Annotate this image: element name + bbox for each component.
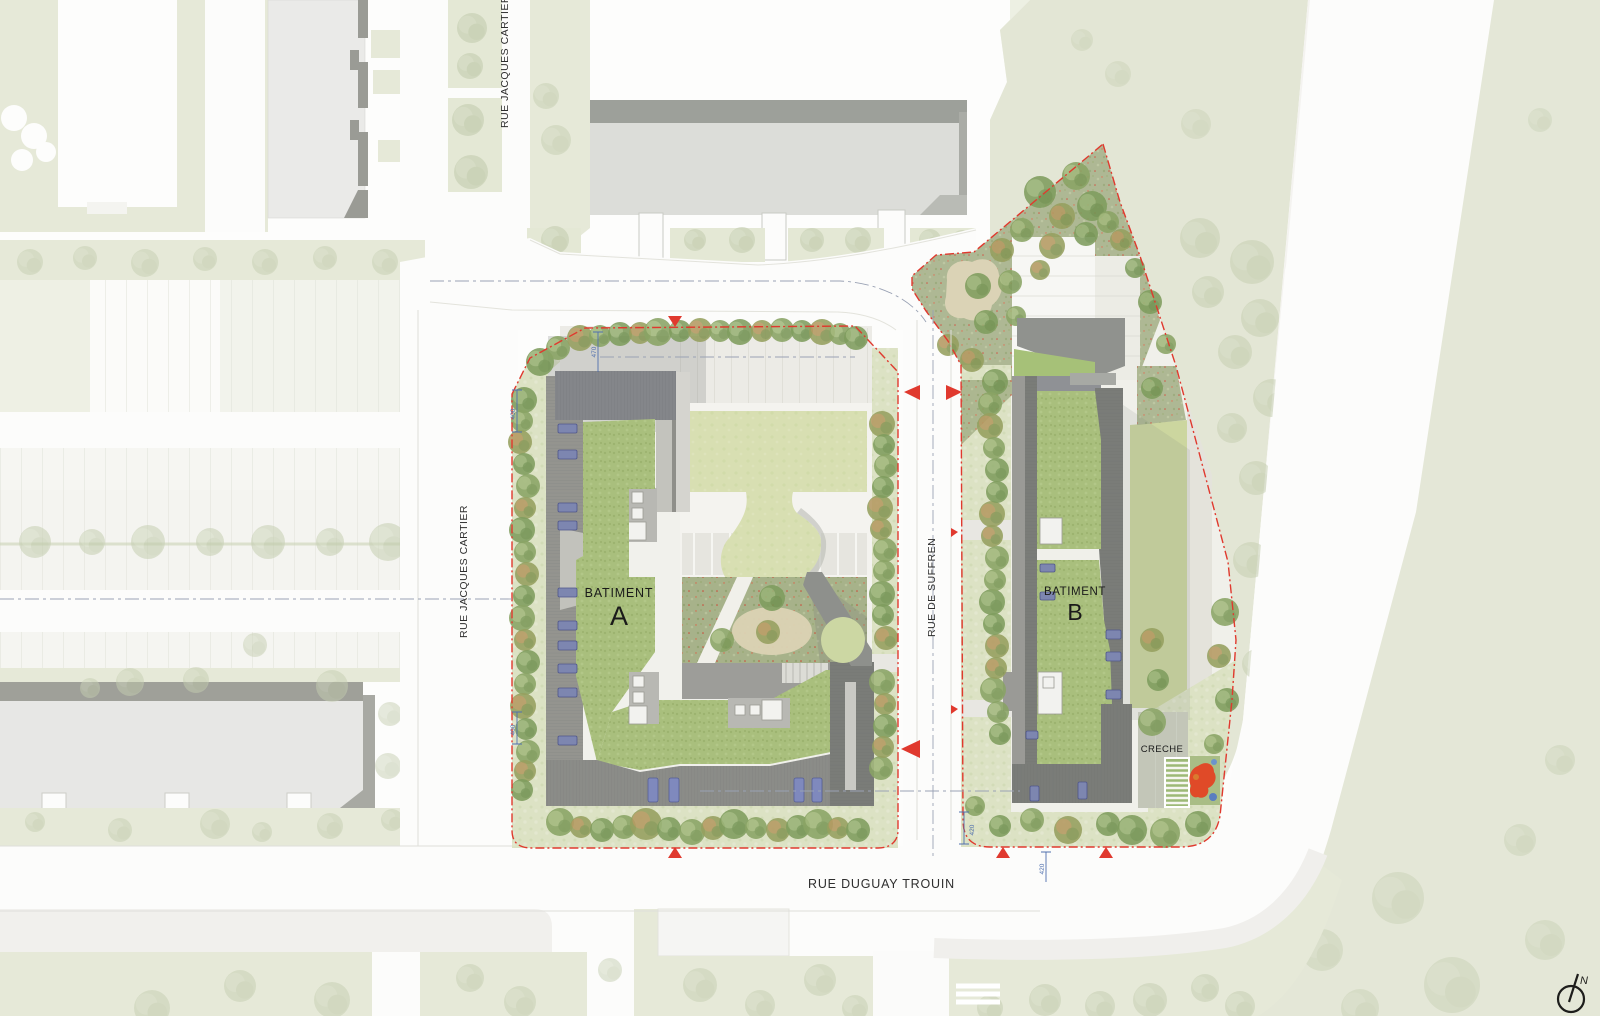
svg-text:RUE DE SUFFREN: RUE DE SUFFREN bbox=[926, 538, 938, 637]
svg-text:N: N bbox=[1580, 975, 1588, 987]
svg-text:BATIMENT: BATIMENT bbox=[1044, 586, 1106, 598]
svg-text:400: 400 bbox=[510, 408, 517, 419]
svg-text:420: 420 bbox=[1039, 863, 1046, 874]
svg-text:RUE DUGUAY TROUIN: RUE DUGUAY TROUIN bbox=[808, 877, 955, 891]
svg-text:470: 470 bbox=[591, 346, 598, 357]
svg-text:400: 400 bbox=[510, 724, 517, 735]
svg-text:RUE JACQUES CARTIER: RUE JACQUES CARTIER bbox=[499, 0, 511, 128]
svg-text:A: A bbox=[610, 601, 628, 631]
svg-text:420: 420 bbox=[969, 824, 976, 835]
svg-text:B: B bbox=[1067, 599, 1082, 625]
svg-text:CRECHE: CRECHE bbox=[1141, 744, 1184, 755]
svg-text:RUE JACQUES CARTIER: RUE JACQUES CARTIER bbox=[458, 505, 470, 638]
svg-text:BATIMENT: BATIMENT bbox=[585, 586, 654, 600]
